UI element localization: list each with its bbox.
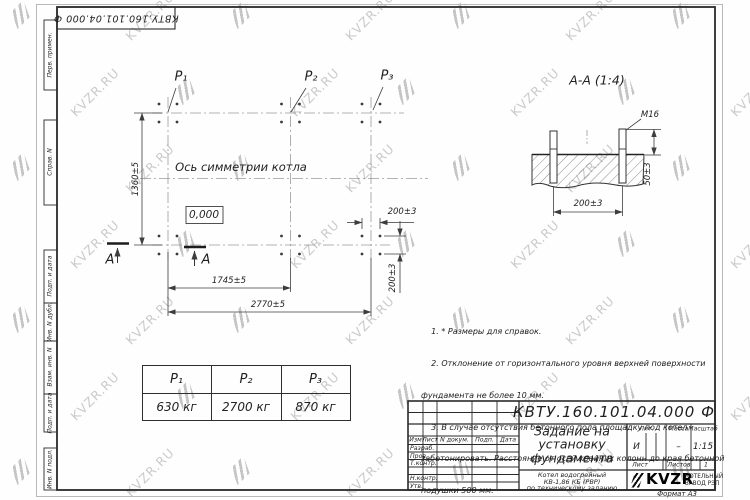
plan-dim-bolt-vertical: 200±3 (388, 264, 398, 293)
strip-label-inv-podl: Инв. N подл. (47, 449, 54, 489)
load-table-header-p3: P₃ (281, 365, 351, 394)
strip-label-perv-primen: Перв. примен. (47, 32, 54, 77)
stamp-top-doc-number: КВТУ.160.101.04.000 Ф (53, 13, 178, 24)
title-block-col-list: Лист (422, 437, 438, 444)
note-line: 2. Отклонение от горизонтального уровня … (421, 359, 724, 370)
title-block-row-prov: Пров. (410, 453, 428, 460)
section-thread-label: М16 (641, 110, 659, 120)
kvzr-logo-caption-line1: КОТЕЛЬНЫЙ (685, 474, 723, 480)
title-block-sheets-value: 1 (704, 462, 708, 469)
title-block-lit-value: И (633, 442, 640, 452)
note-line: 1. * Размеры для справок. (421, 327, 724, 338)
title-block-mass-value: – (676, 442, 681, 452)
plan-dim-span-total: 2770±5 (251, 300, 285, 310)
plan-axis-label: Ось симметрии котла (175, 160, 307, 174)
load-table-value-p3: 870 кг (281, 393, 351, 421)
title-block-title-line2: установку (538, 437, 605, 452)
plan-dim-height: 1360±5 (131, 162, 141, 196)
plan-dim-span-p2: 1745±5 (212, 276, 246, 286)
title-block-sheets-label: Листов (667, 462, 690, 469)
title-block-sheet-label: Лист (632, 462, 648, 469)
title-block-row-tkontr: Т.контр. (410, 460, 437, 467)
plan-point-label-p1: P₁ (174, 70, 187, 85)
note-line: фундамента не более 10 мм. (421, 391, 724, 402)
drawing-sheet: KVZR.RUKVZR.RUKVZR.RUKVZR.RUKVZR.RUKVZR.… (0, 0, 750, 500)
title-block-col-ndokum: N докум. (440, 437, 469, 444)
plan-point-label-p3: P₃ (380, 69, 393, 84)
strip-label-inv-dubl: Инв. N дубл. (47, 302, 54, 341)
section-dim-width: 200±3 (574, 199, 603, 209)
plan-point-label-p2: P₂ (304, 70, 317, 85)
title-block-doc-number: КВТУ.160.101.04.000 Ф (513, 403, 715, 421)
title-block-row-utv: Утв. (410, 483, 423, 490)
title-block-row-nkontr: Н.контр. (410, 475, 438, 482)
title-block-product-line3: по техническому заданию (527, 484, 617, 492)
load-table: P₁ P₂ P₃ 630 кг 2700 кг 870 кг (142, 365, 350, 420)
title-block-col-podp: Подп. (475, 437, 494, 444)
strip-label-sprav-n: Справ. N (47, 148, 54, 175)
title-block-scale-value: 1:15 (693, 442, 713, 452)
load-table-header-p1: P₁ (142, 365, 212, 394)
section-dim-height: 50±3 (643, 162, 653, 185)
plan-section-letter-right: А (202, 253, 211, 268)
plan-view (107, 87, 428, 316)
title-block-title-line3: фундамента (531, 451, 614, 466)
title-block-scale-label: Масштаб (688, 426, 717, 433)
section-title: А-А (1:4) (569, 73, 624, 88)
load-table-value-p2: 2700 кг (211, 393, 282, 421)
title-block-col-izm: Изм (409, 437, 422, 444)
title-block-col-data: Дата (500, 437, 516, 444)
plan-level-mark: 0,000 (189, 209, 219, 221)
load-table-value-p1: 630 кг (142, 393, 212, 421)
title-block-lit-label: Лит. (639, 426, 653, 433)
strip-label-podp-data-1: Подп. и дата (47, 256, 54, 297)
load-table-header-p2: P₂ (211, 365, 282, 394)
strip-label-vzam-inv: Взам. инв. N (47, 348, 54, 387)
plan-section-letter-left: А (106, 253, 115, 268)
title-block-row-razrab: Разраб. (410, 445, 434, 452)
strip-label-podp-data-2: Подп. и дата (47, 393, 54, 434)
kvzr-logo-caption-line2: ЗАВОД РЭП (685, 481, 720, 487)
format-label: Формат А3 (657, 490, 697, 498)
title-block-mass-label: Масса (669, 426, 689, 433)
plan-dim-bolt-horizontal: 200±3 (388, 207, 417, 217)
